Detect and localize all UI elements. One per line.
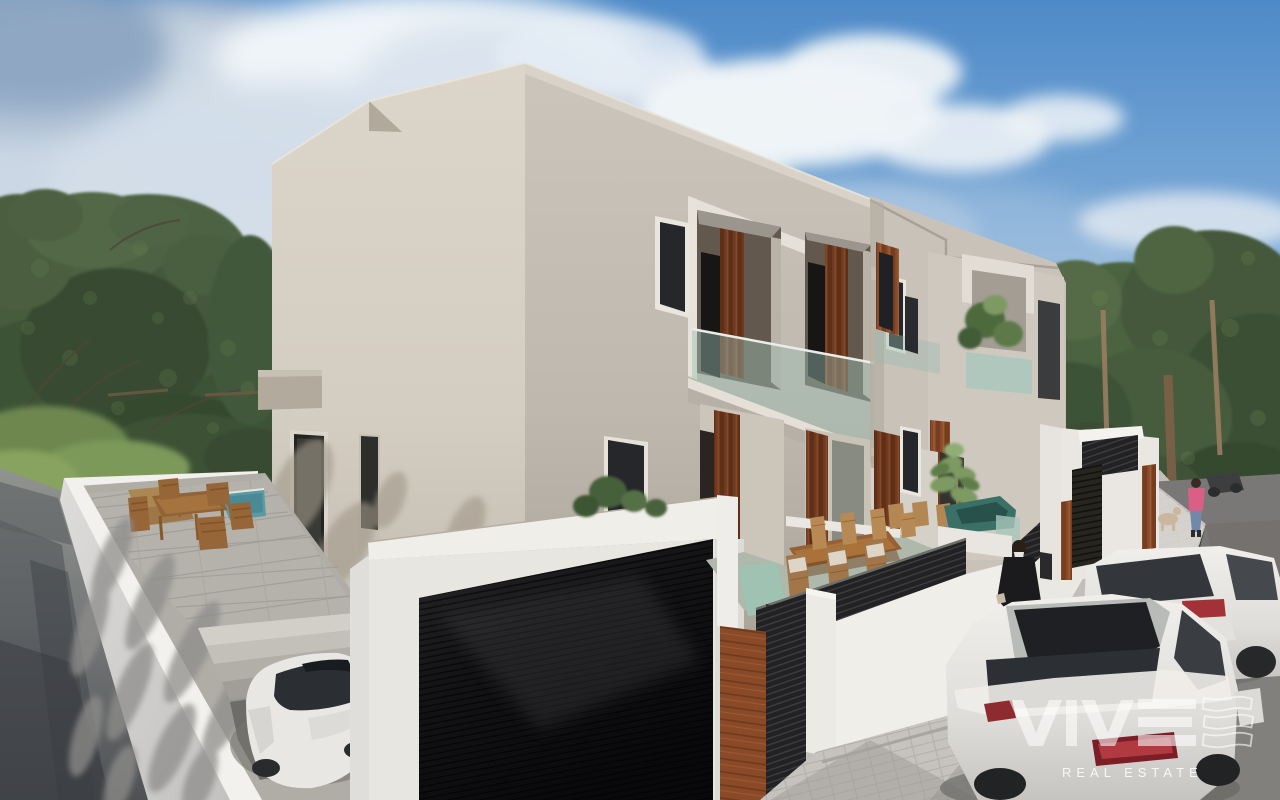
svg-text:REAL ESTATE: REAL ESTATE bbox=[1062, 765, 1203, 780]
